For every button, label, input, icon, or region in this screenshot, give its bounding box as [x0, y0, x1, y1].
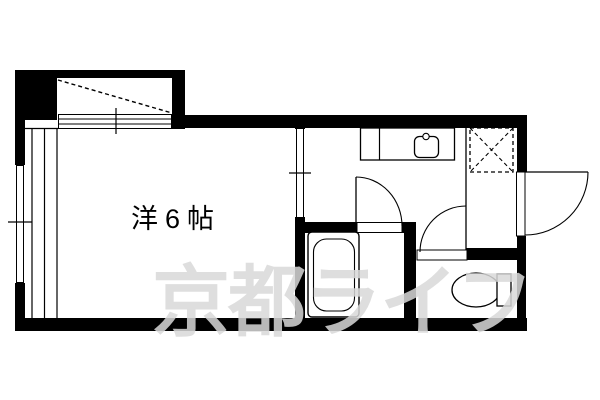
toilet-tank	[497, 274, 511, 306]
bathroom-door-threshold	[357, 223, 402, 233]
kitchen-faucet	[423, 133, 429, 139]
plan-linework	[0, 0, 600, 400]
kitchen-counter-sink	[361, 128, 455, 160]
room-left-track-lines	[25, 129, 58, 319]
washing-machine-x	[470, 128, 513, 172]
entrance-door-frame	[517, 172, 526, 236]
balcony-boundary-dashed-line	[58, 80, 172, 113]
room-label: 洋6帖	[131, 197, 221, 236]
bathroom-door-swing-arc	[356, 177, 402, 226]
washing-machine-space	[470, 128, 513, 172]
bathtub	[308, 232, 359, 317]
toilet-door	[417, 206, 467, 260]
entrance-door	[517, 172, 589, 236]
toilet-bowl	[452, 273, 500, 307]
balcony-window-tracks	[58, 119, 172, 124]
entrance-door-swing-arc	[525, 172, 588, 235]
bathroom-door	[356, 177, 402, 233]
toilet-door-swing-arc	[420, 206, 466, 252]
floor-plan-canvas: 洋6帖 京都ライフ	[0, 0, 600, 400]
toilet-door-threshold	[417, 250, 467, 260]
toilet	[452, 273, 511, 307]
kitchen-counter	[361, 128, 455, 160]
